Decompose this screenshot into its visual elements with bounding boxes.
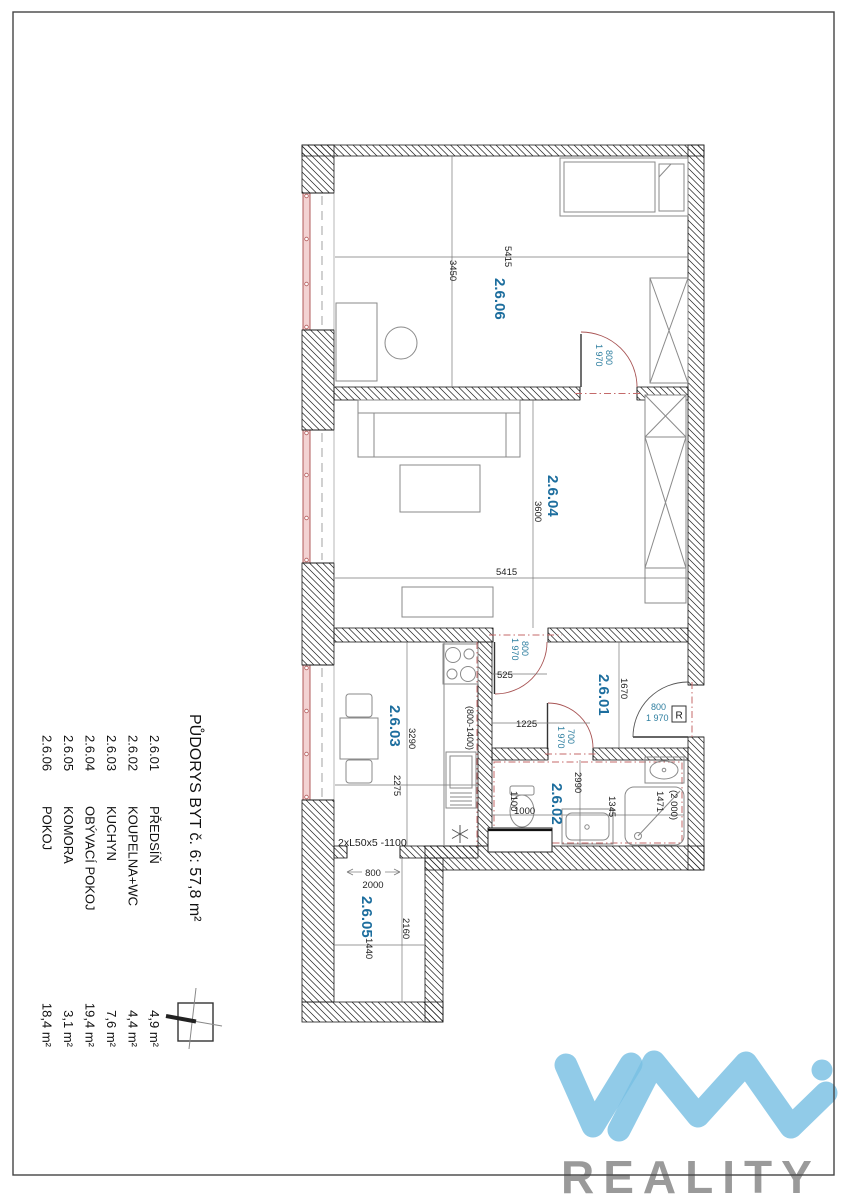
window-kitchen bbox=[302, 665, 334, 800]
bed-mattress bbox=[564, 162, 655, 212]
sideboard bbox=[402, 587, 493, 617]
dim-hall-off2: 1225 bbox=[516, 719, 537, 730]
fridge-snowflake-icon bbox=[452, 825, 468, 843]
room-bedroom-furniture bbox=[336, 158, 688, 383]
dim-bath-w: 2990 bbox=[572, 772, 583, 793]
legend-num-4: 2.6.04 bbox=[83, 735, 98, 771]
bed-pillow bbox=[659, 164, 684, 211]
floorplan-drawing: 2.6.06 2.6.04 2.6.03 2.6.01 2.6.02 2.6.0… bbox=[0, 0, 847, 1200]
sink bbox=[446, 752, 476, 808]
page-border bbox=[13, 12, 834, 1175]
dim-bedroom-w: 5415 bbox=[502, 246, 513, 267]
wall-storage-right bbox=[425, 858, 443, 1022]
legend-name-5: KOMORA bbox=[61, 806, 76, 864]
washbasin bbox=[645, 757, 684, 783]
wall-top bbox=[302, 145, 704, 156]
wall-living-hall-left bbox=[334, 628, 493, 642]
door-living-w: 800 bbox=[520, 641, 530, 656]
window-bedroom bbox=[302, 193, 334, 330]
dimension-lines bbox=[334, 156, 688, 1002]
wardrobe-living bbox=[645, 395, 686, 603]
legend-area-1: 4,9 m² bbox=[147, 1010, 162, 1048]
dim-bath-wm: 1345 bbox=[606, 796, 617, 817]
wall-left-block-4 bbox=[302, 800, 334, 1002]
dim-kitchen-h: 3290 bbox=[406, 728, 417, 749]
legend-name-2: KOUPELNA+WC bbox=[126, 806, 141, 906]
label-living: 2.6.04 bbox=[544, 475, 561, 517]
legend-num-5: 2.6.05 bbox=[61, 735, 76, 771]
dim-bedroom-h: 3450 bbox=[447, 260, 458, 281]
legend-area-3: 7,6 m² bbox=[104, 1010, 119, 1048]
wall-living-hall-right bbox=[548, 628, 688, 642]
legend-title: PŮDORYS BYT č. 6: 57,8 m² bbox=[186, 714, 205, 922]
door-bedroom-w: 800 bbox=[604, 350, 614, 365]
dim-storage-door-h: 2000 bbox=[362, 880, 383, 891]
wall-bedroom-living-left bbox=[334, 387, 580, 400]
r-box-label: R bbox=[676, 711, 683, 722]
door-bath-w: 700 bbox=[566, 729, 576, 744]
dim-bath-wc: 1000 bbox=[514, 806, 535, 817]
window-living bbox=[302, 430, 334, 563]
legend-num-6: 2.6.06 bbox=[40, 735, 55, 771]
dim-living-w: 5415 bbox=[496, 567, 517, 578]
legend-name-1: PŘEDSÍŇ bbox=[147, 806, 162, 864]
label-storage: 2.6.05 bbox=[358, 896, 375, 938]
room-living-furniture bbox=[358, 395, 686, 617]
legend-num-1: 2.6.01 bbox=[147, 735, 162, 771]
wall-left-block-3 bbox=[302, 563, 334, 665]
wall-left-block-1 bbox=[302, 145, 334, 193]
legend-area-4: 19,4 m² bbox=[83, 1003, 98, 1048]
coffee-table bbox=[400, 465, 480, 512]
brand-mark-icon bbox=[566, 1062, 826, 1130]
legend-area-5: 3,1 m² bbox=[61, 1010, 76, 1048]
legend-num-2: 2.6.02 bbox=[126, 735, 141, 771]
dim-hall-off1: 525 bbox=[497, 670, 513, 681]
dim-storage-h: 2160 bbox=[400, 918, 411, 939]
wall-hall-bath-left bbox=[492, 748, 548, 760]
north-arrow-icon bbox=[166, 988, 222, 1049]
door-bedroom-h: 1 970 bbox=[594, 344, 604, 367]
washing-machine bbox=[562, 809, 613, 844]
door-bedroom bbox=[575, 332, 642, 400]
kitchen-chair-1 bbox=[346, 694, 372, 717]
kitchen-table bbox=[340, 718, 378, 759]
label-bedroom: 2.6.06 bbox=[491, 278, 508, 320]
shaft-niche bbox=[488, 828, 552, 852]
legend-num-3: 2.6.03 bbox=[104, 735, 119, 771]
label-hall: 2.6.01 bbox=[595, 674, 612, 716]
door-entrance-w: 800 bbox=[651, 702, 666, 712]
desk bbox=[336, 303, 377, 381]
legend-name-4: OBÝVACÍ POKOJ bbox=[83, 806, 98, 911]
dim-storage-w: 1440 bbox=[363, 938, 374, 959]
stove bbox=[443, 644, 478, 684]
dim-kitchen-w: 2275 bbox=[391, 775, 402, 796]
wall-left-block-2 bbox=[302, 330, 334, 430]
floorplan-page: 2.6.06 2.6.04 2.6.03 2.6.01 2.6.02 2.6.0… bbox=[0, 0, 847, 1200]
label-bath: 2.6.02 bbox=[548, 783, 565, 825]
kitchen-chair-2 bbox=[346, 760, 372, 783]
legend: PŮDORYS BYT č. 6: 57,8 m² 2.6.01 2.6.02 … bbox=[40, 714, 206, 1048]
brand-mark-dot bbox=[812, 1060, 833, 1081]
door-entrance bbox=[633, 682, 704, 740]
wall-storage-bottom bbox=[302, 1002, 443, 1022]
dim-living-h: 3600 bbox=[532, 501, 543, 522]
chair bbox=[385, 327, 417, 359]
dim-bath-tub: 1471 bbox=[654, 791, 665, 812]
label-kitchen: 2.6.03 bbox=[386, 705, 403, 747]
wall-kitchen-hall bbox=[478, 642, 492, 846]
wall-south bbox=[425, 846, 704, 870]
dim-kitchen-cab: (800-1400) bbox=[465, 706, 475, 750]
wall-right-upper bbox=[688, 145, 704, 685]
legend-name-6: POKOJ bbox=[40, 806, 55, 850]
door-living-h: 1 970 bbox=[510, 638, 520, 661]
sofa bbox=[358, 400, 520, 457]
dim-hall-h: 1670 bbox=[618, 678, 629, 699]
door-entrance-h: 1 970 bbox=[646, 713, 669, 723]
windows bbox=[302, 193, 334, 800]
dim-bath-tub2: (2 000) bbox=[668, 790, 679, 820]
wall-hall-bath-right bbox=[593, 748, 688, 760]
brand-logo: REALITY bbox=[561, 1060, 833, 1200]
dim-kitchen-lintel: 2xL50x5 -1100 bbox=[338, 837, 407, 849]
legend-area-2: 4,4 m² bbox=[126, 1010, 141, 1048]
dim-storage-door: 800 bbox=[365, 868, 381, 879]
legend-name-3: KUCHYN bbox=[104, 806, 119, 861]
door-bath-h: 1 970 bbox=[556, 726, 566, 749]
legend-area-6: 18,4 m² bbox=[40, 1003, 55, 1048]
wardrobe-bedroom bbox=[650, 278, 688, 383]
